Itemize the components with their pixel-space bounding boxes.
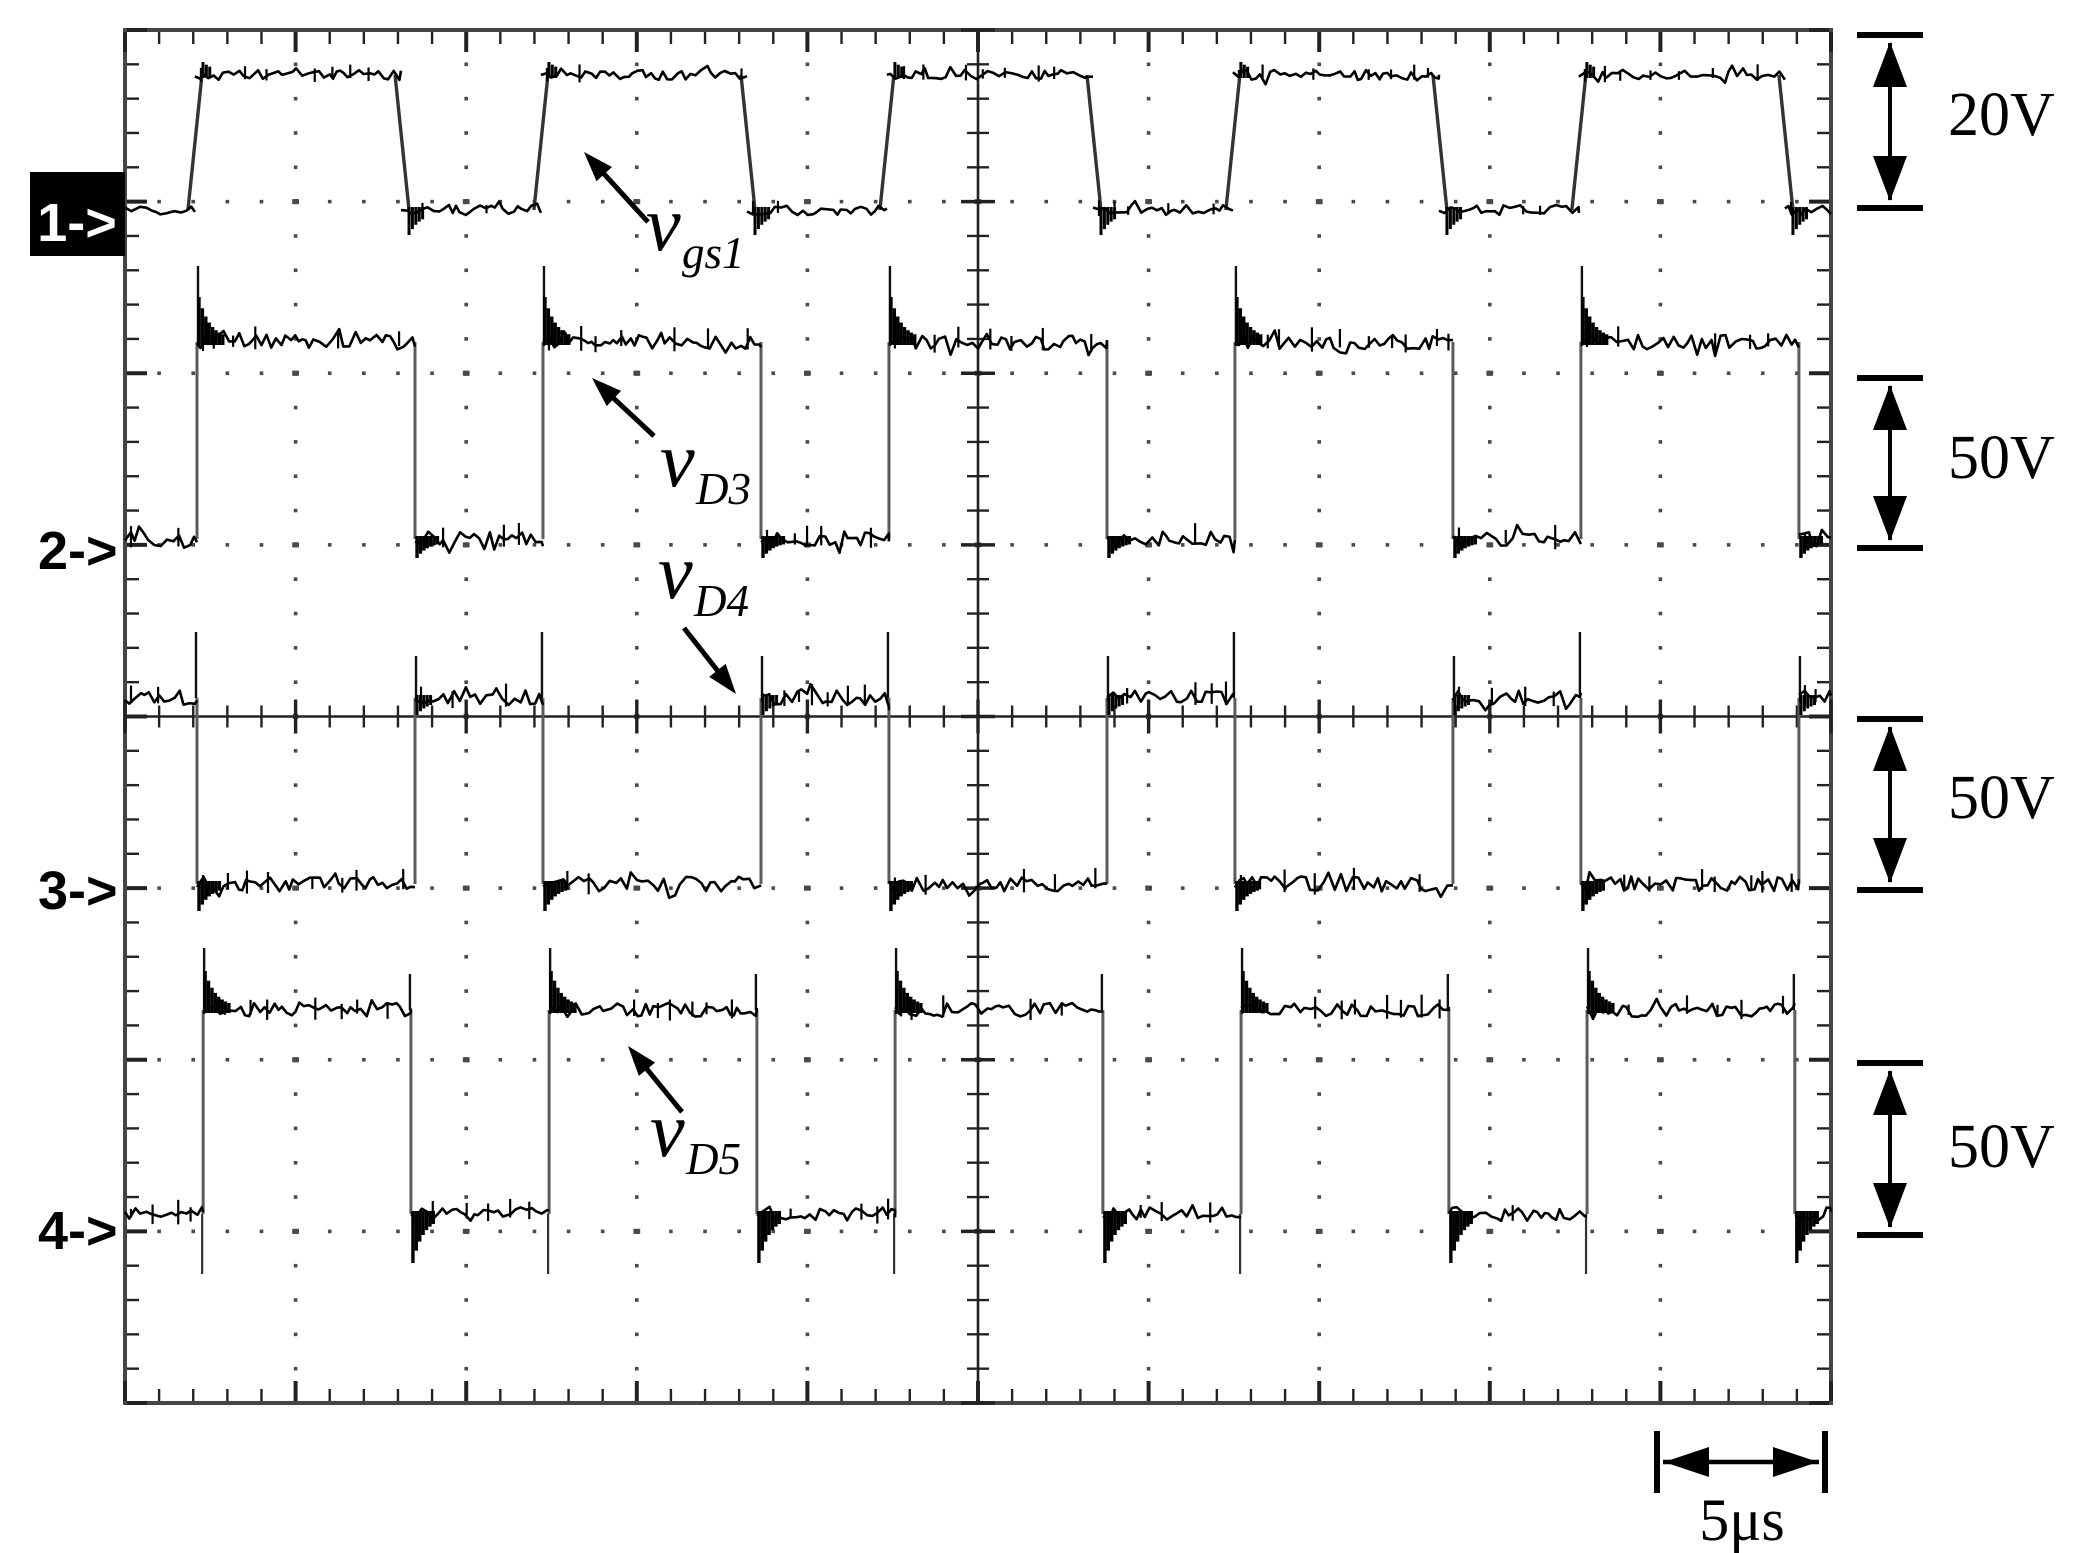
signal-label-text-vgs1: vgs1 — [646, 180, 745, 278]
voltage-scale-label-1: 20V — [1948, 81, 2055, 149]
label-arrow-vgs1 — [584, 152, 648, 222]
channel-marker-1-label: 1-> — [37, 193, 117, 253]
channel-marker-3-label: 3-> — [38, 861, 118, 921]
time-scale-label: 5μs — [1699, 1487, 1785, 1553]
channel-marker-4-label: 4-> — [38, 1201, 118, 1261]
signal-label-vd4: vD4 — [658, 528, 749, 694]
voltage-scale-1: 20V — [1857, 35, 2055, 208]
signal-label-vgs1: vgs1 — [584, 152, 745, 278]
voltage-scale-3: 50V — [1857, 719, 2055, 890]
channel-marker-3: 3-> — [38, 861, 118, 921]
voltage-scale-2: 50V — [1857, 378, 2055, 548]
signal-label-vd5: vD5 — [628, 1046, 741, 1184]
channel-marker-2: 2-> — [38, 521, 118, 581]
center-axes — [125, 30, 1831, 1403]
signal-label-text-vd4: vD4 — [658, 528, 749, 626]
channel-marker-4: 4-> — [38, 1201, 118, 1261]
signal-label-text-vd3: vD3 — [660, 416, 751, 514]
signal-label-vd3: vD3 — [592, 378, 751, 514]
channel-marker-1: 1-> — [30, 172, 125, 256]
oscilloscope-capture: 1->2->3->4->vgs1vD3vD4vD520V50V50V50V5μs — [0, 0, 2081, 1553]
time-scale: 5μs — [1657, 1431, 1825, 1553]
voltage-scale-label-2: 50V — [1948, 424, 2055, 492]
signal-label-text-vd5: vD5 — [650, 1086, 741, 1184]
voltage-scale-label-3: 50V — [1948, 764, 2055, 832]
channel-marker-2-label: 2-> — [38, 521, 118, 581]
voltage-scale-4: 50V — [1857, 1063, 2055, 1235]
label-arrow-vd4 — [684, 628, 736, 694]
label-arrow-vd3 — [592, 378, 654, 436]
voltage-scale-label-4: 50V — [1948, 1113, 2055, 1181]
